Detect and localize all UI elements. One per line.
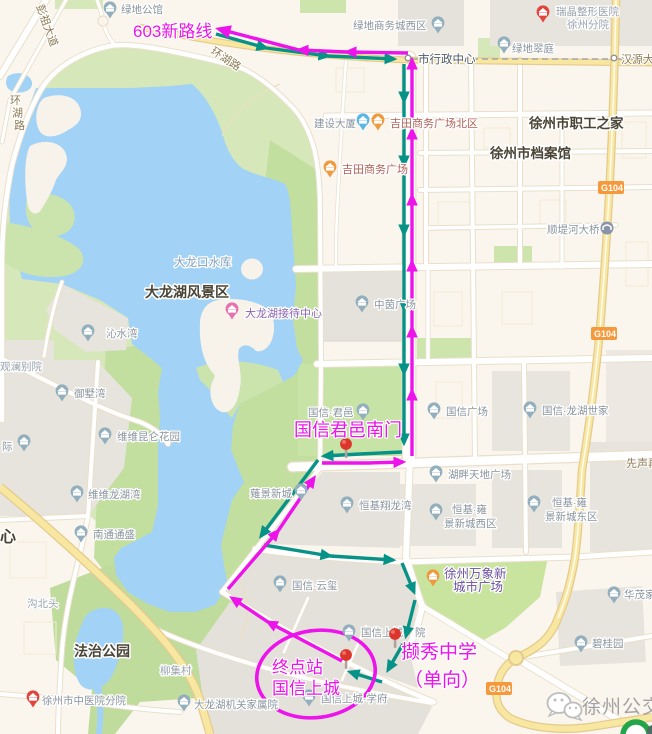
svg-text:维维昆仑花园: 维维昆仑花园 (117, 430, 180, 443)
svg-text:御墅湾: 御墅湾 (74, 387, 106, 400)
svg-text:薙景新城: 薙景新城 (250, 487, 292, 500)
svg-text:国信上城: 国信上城 (272, 679, 340, 698)
svg-text:（单向）: （单向） (404, 669, 480, 691)
svg-text:南通通盛: 南通通盛 (93, 528, 135, 541)
svg-text:瑞晶整形医院: 瑞晶整形医院 (556, 5, 619, 18)
svg-text:心: 心 (0, 528, 16, 546)
svg-text:G104: G104 (489, 684, 511, 694)
svg-text:国信·龙湖世家: 国信·龙湖世家 (542, 404, 609, 417)
svg-text:国信·云玺: 国信·云玺 (292, 579, 338, 592)
svg-text:大龙口水库: 大龙口水库 (174, 255, 232, 269)
svg-text:先声再: 先声再 (626, 456, 652, 470)
svg-text:际: 际 (2, 441, 13, 453)
svg-text:603新路线: 603新路线 (133, 22, 212, 41)
svg-text:沟北头: 沟北头 (27, 597, 59, 610)
svg-text:顺堤河大桥: 顺堤河大桥 (547, 223, 600, 236)
svg-text:终点站: 终点站 (272, 658, 323, 677)
svg-text:恒基翔龙湾: 恒基翔龙湾 (359, 499, 412, 512)
svg-text:国信广场: 国信广场 (446, 405, 488, 418)
svg-text:沁水湾: 沁水湾 (106, 327, 138, 340)
svg-text:维维龙湖湾: 维维龙湖湾 (88, 488, 141, 501)
svg-text:绿地翠庭: 绿地翠庭 (512, 42, 554, 55)
svg-text:国信·君邑: 国信·君邑 (308, 407, 354, 419)
svg-text:湖畔天地广场: 湖畔天地广场 (448, 468, 511, 481)
svg-text:恒基·雍: 恒基·雍 (552, 496, 587, 509)
svg-text:国信君邑南门: 国信君邑南门 (294, 420, 402, 440)
svg-text:柳集村: 柳集村 (160, 664, 192, 677)
svg-text:华茂家: 华茂家 (624, 588, 652, 601)
svg-text:徐州市职工之家: 徐州市职工之家 (528, 115, 624, 131)
svg-text:徐州分院: 徐州分院 (567, 18, 609, 31)
svg-text:观澜别院: 观澜别院 (0, 360, 42, 373)
svg-text:绿地公馆: 绿地公馆 (121, 3, 163, 16)
svg-text:法治公园: 法治公园 (74, 643, 130, 659)
svg-text:大龙湖机关家属院: 大龙湖机关家属院 (194, 698, 278, 711)
svg-text:恒基·雍: 恒基·雍 (452, 503, 487, 516)
svg-text:徐州市档案馆: 徐州市档案馆 (489, 145, 571, 161)
svg-text:吉田商务广场北区: 吉田商务广场北区 (390, 116, 478, 130)
svg-text:徐州公交: 徐州公交 (582, 696, 652, 718)
svg-text:徐州万象新: 徐州万象新 (444, 566, 507, 581)
svg-text:大龙湖接待中心: 大龙湖接待中心 (245, 306, 322, 320)
svg-text:大龙湖风景区: 大龙湖风景区 (145, 284, 229, 300)
svg-text:G104: G104 (601, 183, 623, 193)
svg-text:建设大厦: 建设大厦 (314, 117, 356, 130)
svg-text:G104: G104 (594, 329, 616, 339)
svg-text:徐州市中医院分院: 徐州市中医院分院 (42, 694, 126, 707)
svg-text:中茵广场: 中茵广场 (374, 298, 416, 311)
svg-text:吉田商务广场: 吉田商务广场 (342, 162, 408, 176)
svg-text:城市广场: 城市广场 (453, 579, 503, 594)
svg-text:景新城东区: 景新城东区 (545, 510, 598, 523)
svg-text:撷秀中学: 撷秀中学 (401, 641, 477, 663)
svg-text:汉源大: 汉源大 (621, 52, 652, 66)
svg-text:碧桂园: 碧桂园 (592, 637, 624, 650)
svg-text:绿地商务城西区: 绿地商务城西区 (353, 19, 427, 32)
svg-text:市行政中心: 市行政中心 (418, 52, 476, 66)
svg-text:景新城西区: 景新城西区 (444, 517, 497, 530)
